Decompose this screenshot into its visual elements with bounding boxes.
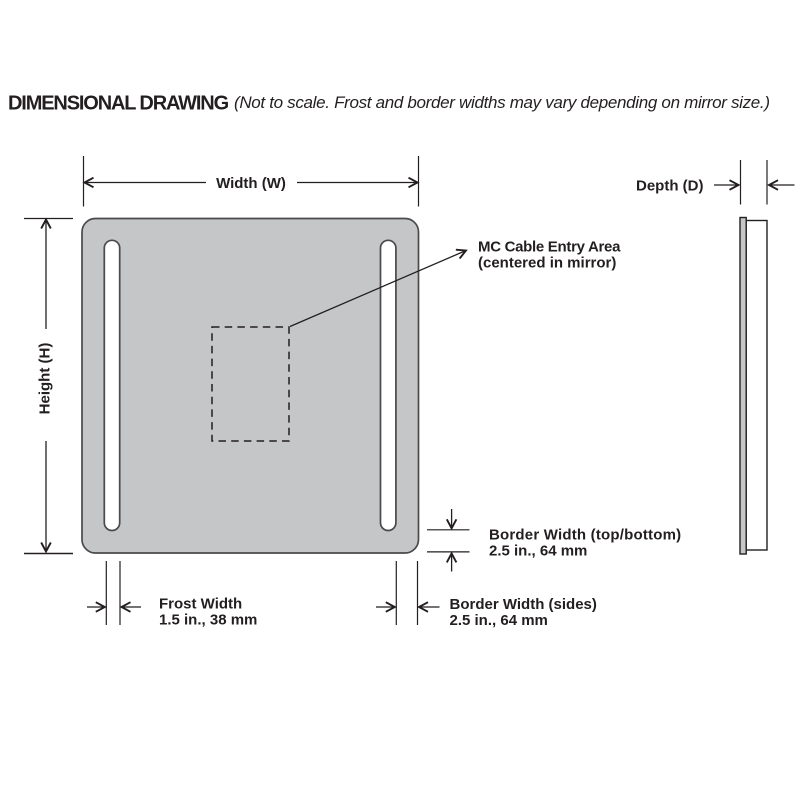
svg-text:1.5 in., 38 mm: 1.5 in., 38 mm bbox=[159, 612, 257, 629]
svg-text:(centered in mirror): (centered in mirror) bbox=[478, 255, 616, 272]
svg-text:Depth (D): Depth (D) bbox=[636, 178, 704, 195]
svg-text:DIMENSIONAL DRAWING: DIMENSIONAL DRAWING bbox=[8, 93, 229, 115]
svg-text:(Not to scale. Frost and borde: (Not to scale. Frost and border widths m… bbox=[234, 93, 770, 112]
svg-text:Height (H): Height (H) bbox=[37, 343, 54, 415]
svg-text:2.5 in., 64 mm: 2.5 in., 64 mm bbox=[489, 543, 587, 560]
svg-text:Frost Width: Frost Width bbox=[159, 596, 242, 613]
svg-text:MC Cable Entry Area: MC Cable Entry Area bbox=[478, 239, 621, 256]
svg-text:Border Width (sides): Border Width (sides) bbox=[450, 596, 597, 613]
svg-text:Border Width (top/bottom): Border Width (top/bottom) bbox=[489, 527, 681, 544]
svg-text:2.5 in., 64 mm: 2.5 in., 64 mm bbox=[450, 612, 548, 629]
svg-text:Width (W): Width (W) bbox=[216, 175, 286, 192]
